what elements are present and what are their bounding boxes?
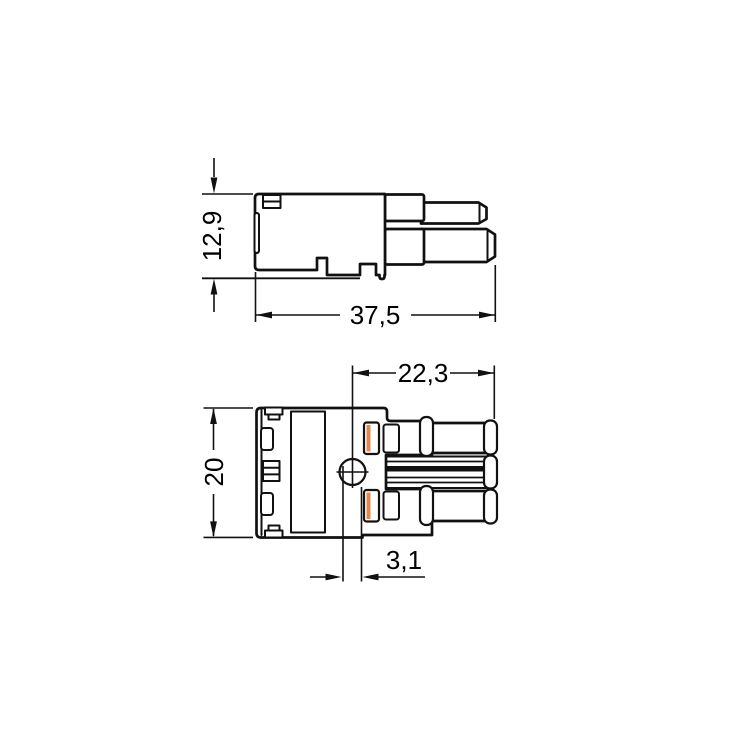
arrowhead-left — [363, 574, 379, 581]
side-view: 12,9 37,5 — [197, 158, 495, 330]
arrowhead-left — [256, 312, 272, 319]
dimension-label-side-height: 12,9 — [197, 211, 227, 262]
bottom-pin-end-cap — [484, 490, 497, 524]
connector-drawing: 12,9 37,5 — [0, 0, 750, 750]
dimension-label-hole-width: 3,1 — [386, 545, 422, 575]
top-edge-notch-inner — [269, 415, 280, 420]
arrowhead-down — [210, 521, 217, 537]
arrowhead-up — [210, 408, 217, 424]
dimension-label-front-height: 20 — [199, 458, 229, 487]
dimension-front-height: 20 — [199, 408, 253, 537]
arrowhead-up — [211, 279, 218, 295]
lower-pin-shaft — [421, 229, 495, 262]
top-pin-carrier-cap — [420, 417, 433, 456]
bottom-pin-carrier-cap — [420, 486, 433, 525]
bottom-contact-pin — [428, 491, 488, 521]
release-lever-top-shade — [367, 425, 371, 452]
dimension-label-side-length: 37,5 — [350, 300, 401, 330]
vent-grid — [263, 461, 280, 481]
coding-slot-upper — [261, 428, 273, 450]
bottom-edge-notch — [265, 531, 283, 538]
release-lever-bottom — [364, 490, 379, 522]
arrowhead-right — [478, 370, 494, 377]
bottom-edge-notch-inner — [269, 526, 280, 531]
middle-slot-end-cap — [484, 456, 497, 489]
top-edge-notch — [265, 408, 283, 415]
lower-pin-base — [385, 229, 424, 265]
upper-pin-base — [385, 195, 424, 222]
middle-contact-slot — [386, 457, 490, 489]
arrowhead-right — [479, 312, 495, 319]
slot-dark-band — [386, 466, 490, 472]
technical-drawing-canvas: 12,9 37,5 — [0, 0, 750, 750]
arrowhead-down — [211, 178, 218, 194]
lever-pocket-bottom — [384, 492, 400, 520]
top-contact-pin — [428, 423, 488, 453]
coding-slot-lower — [261, 493, 273, 515]
top-pin-end-cap — [484, 421, 497, 455]
dimension-label-front-width: 22,3 — [398, 358, 449, 388]
left-face-groove — [255, 213, 260, 253]
arrowhead-right — [326, 574, 342, 581]
upper-pin-shaft — [421, 203, 487, 224]
marking-label-field — [291, 412, 325, 533]
release-lever-top — [364, 423, 379, 455]
arrowhead-left — [353, 370, 369, 377]
dimension-side-height: 12,9 — [197, 158, 253, 312]
side-view-pins — [385, 195, 495, 265]
release-lever-bottom-shade — [367, 493, 371, 520]
lever-pocket-top — [384, 425, 400, 453]
front-view: 22,3 20 3,1 — [199, 358, 497, 582]
